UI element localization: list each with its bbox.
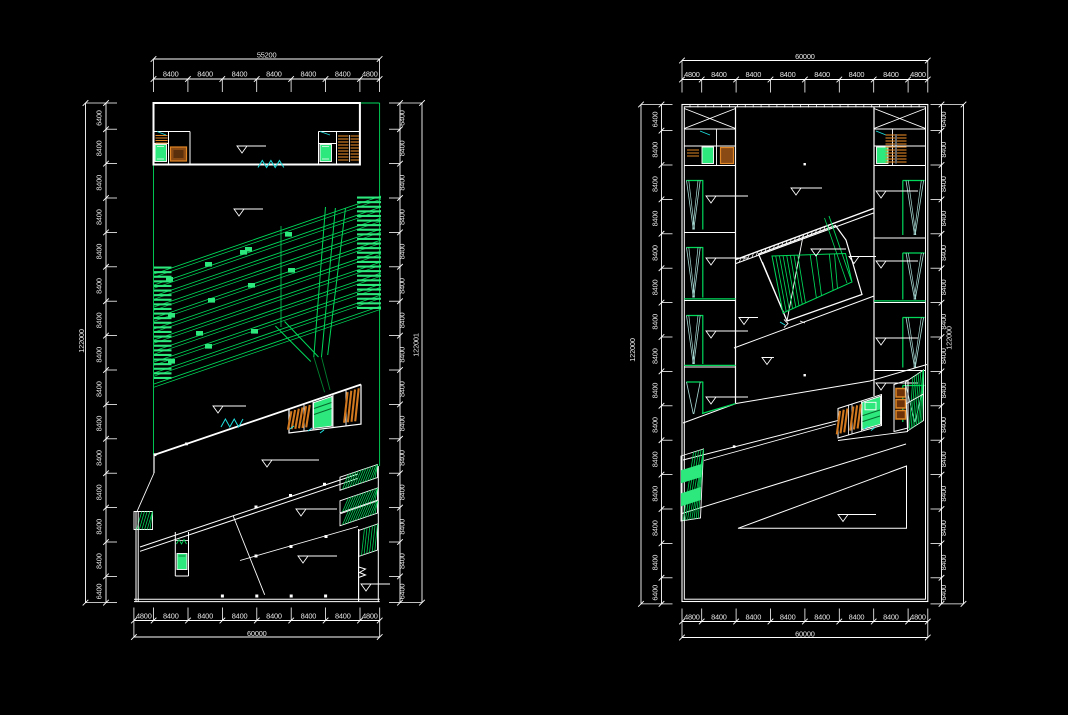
svg-text:8400: 8400 bbox=[939, 486, 948, 502]
svg-text:8400: 8400 bbox=[939, 555, 948, 571]
svg-text:8400: 8400 bbox=[883, 612, 899, 621]
svg-text:8400: 8400 bbox=[398, 553, 407, 569]
svg-text:8400: 8400 bbox=[95, 312, 104, 328]
svg-text:8400: 8400 bbox=[95, 484, 104, 500]
svg-text:8400: 8400 bbox=[780, 612, 796, 621]
svg-text:8400: 8400 bbox=[95, 278, 104, 294]
svg-text:8400: 8400 bbox=[95, 244, 104, 260]
svg-text:8400: 8400 bbox=[95, 416, 104, 432]
svg-text:8400: 8400 bbox=[163, 69, 179, 78]
svg-text:60000: 60000 bbox=[795, 52, 815, 61]
svg-text:8400: 8400 bbox=[651, 314, 660, 330]
svg-text:8400: 8400 bbox=[398, 244, 407, 260]
svg-text:8400: 8400 bbox=[780, 70, 796, 79]
svg-text:4800: 4800 bbox=[362, 69, 378, 78]
svg-text:8400: 8400 bbox=[849, 70, 865, 79]
svg-text:8400: 8400 bbox=[939, 451, 948, 467]
svg-text:8400: 8400 bbox=[95, 347, 104, 363]
svg-text:122000: 122000 bbox=[945, 326, 954, 350]
svg-text:8400: 8400 bbox=[939, 520, 948, 536]
svg-text:8400: 8400 bbox=[398, 175, 407, 191]
svg-text:8400: 8400 bbox=[163, 611, 179, 620]
svg-text:8400: 8400 bbox=[651, 486, 660, 502]
svg-text:8400: 8400 bbox=[197, 611, 213, 620]
svg-text:6400: 6400 bbox=[398, 110, 407, 126]
svg-text:8400: 8400 bbox=[95, 519, 104, 535]
svg-text:8400: 8400 bbox=[95, 209, 104, 225]
svg-text:8400: 8400 bbox=[651, 245, 660, 261]
svg-text:6400: 6400 bbox=[95, 584, 104, 600]
svg-text:8400: 8400 bbox=[335, 69, 351, 78]
svg-text:6400: 6400 bbox=[939, 112, 948, 128]
svg-text:6400: 6400 bbox=[939, 585, 948, 601]
svg-text:8400: 8400 bbox=[95, 381, 104, 397]
svg-text:8400: 8400 bbox=[939, 417, 948, 433]
svg-text:4800: 4800 bbox=[136, 611, 152, 620]
svg-text:8400: 8400 bbox=[651, 520, 660, 536]
svg-text:6400: 6400 bbox=[398, 584, 407, 600]
svg-text:8400: 8400 bbox=[651, 451, 660, 467]
svg-text:8400: 8400 bbox=[651, 211, 660, 227]
svg-text:8400: 8400 bbox=[651, 142, 660, 158]
svg-text:55200: 55200 bbox=[257, 50, 277, 59]
svg-text:60000: 60000 bbox=[795, 629, 815, 638]
svg-text:8400: 8400 bbox=[651, 176, 660, 192]
svg-text:8400: 8400 bbox=[849, 612, 865, 621]
svg-text:8400: 8400 bbox=[266, 69, 282, 78]
svg-text:8400: 8400 bbox=[301, 611, 317, 620]
svg-text:8400: 8400 bbox=[398, 312, 407, 328]
svg-text:8400: 8400 bbox=[398, 381, 407, 397]
svg-text:8400: 8400 bbox=[939, 383, 948, 399]
svg-text:8400: 8400 bbox=[814, 70, 830, 79]
svg-text:8400: 8400 bbox=[745, 70, 761, 79]
svg-text:8400: 8400 bbox=[939, 245, 948, 261]
svg-text:122001: 122001 bbox=[412, 333, 421, 357]
svg-text:8400: 8400 bbox=[266, 611, 282, 620]
svg-text:4800: 4800 bbox=[910, 612, 926, 621]
svg-text:8400: 8400 bbox=[95, 450, 104, 466]
svg-text:8400: 8400 bbox=[95, 553, 104, 569]
svg-text:8400: 8400 bbox=[939, 142, 948, 158]
svg-text:8400: 8400 bbox=[814, 612, 830, 621]
svg-text:8400: 8400 bbox=[398, 278, 407, 294]
svg-text:8400: 8400 bbox=[232, 611, 248, 620]
svg-text:8400: 8400 bbox=[398, 484, 407, 500]
svg-text:8400: 8400 bbox=[300, 69, 316, 78]
svg-text:8400: 8400 bbox=[398, 519, 407, 535]
svg-text:4800: 4800 bbox=[910, 70, 926, 79]
svg-text:122000: 122000 bbox=[628, 338, 637, 362]
svg-text:8400: 8400 bbox=[95, 140, 104, 156]
svg-text:8400: 8400 bbox=[651, 417, 660, 433]
svg-text:8400: 8400 bbox=[745, 612, 761, 621]
svg-text:122000: 122000 bbox=[77, 329, 86, 353]
svg-text:6400: 6400 bbox=[651, 112, 660, 128]
svg-text:8400: 8400 bbox=[398, 416, 407, 432]
svg-text:8400: 8400 bbox=[398, 140, 407, 156]
svg-text:8400: 8400 bbox=[232, 69, 248, 78]
svg-text:60000: 60000 bbox=[247, 629, 267, 638]
svg-text:8400: 8400 bbox=[398, 450, 407, 466]
svg-text:8400: 8400 bbox=[939, 176, 948, 192]
svg-text:8400: 8400 bbox=[939, 211, 948, 227]
svg-text:8400: 8400 bbox=[651, 383, 660, 399]
svg-text:4800: 4800 bbox=[684, 612, 700, 621]
svg-text:8400: 8400 bbox=[651, 348, 660, 364]
svg-text:8400: 8400 bbox=[883, 70, 899, 79]
svg-text:4800: 4800 bbox=[362, 611, 378, 620]
svg-text:8400: 8400 bbox=[711, 70, 727, 79]
svg-text:6400: 6400 bbox=[95, 110, 104, 126]
svg-text:8400: 8400 bbox=[939, 279, 948, 295]
svg-text:8400: 8400 bbox=[651, 555, 660, 571]
svg-text:8400: 8400 bbox=[335, 611, 351, 620]
svg-text:8400: 8400 bbox=[651, 279, 660, 295]
svg-text:8400: 8400 bbox=[398, 347, 407, 363]
svg-text:8400: 8400 bbox=[398, 209, 407, 225]
svg-text:6400: 6400 bbox=[651, 585, 660, 601]
svg-text:8400: 8400 bbox=[711, 612, 727, 621]
svg-text:4800: 4800 bbox=[684, 70, 700, 79]
svg-text:8400: 8400 bbox=[197, 69, 213, 78]
svg-text:8400: 8400 bbox=[95, 175, 104, 191]
